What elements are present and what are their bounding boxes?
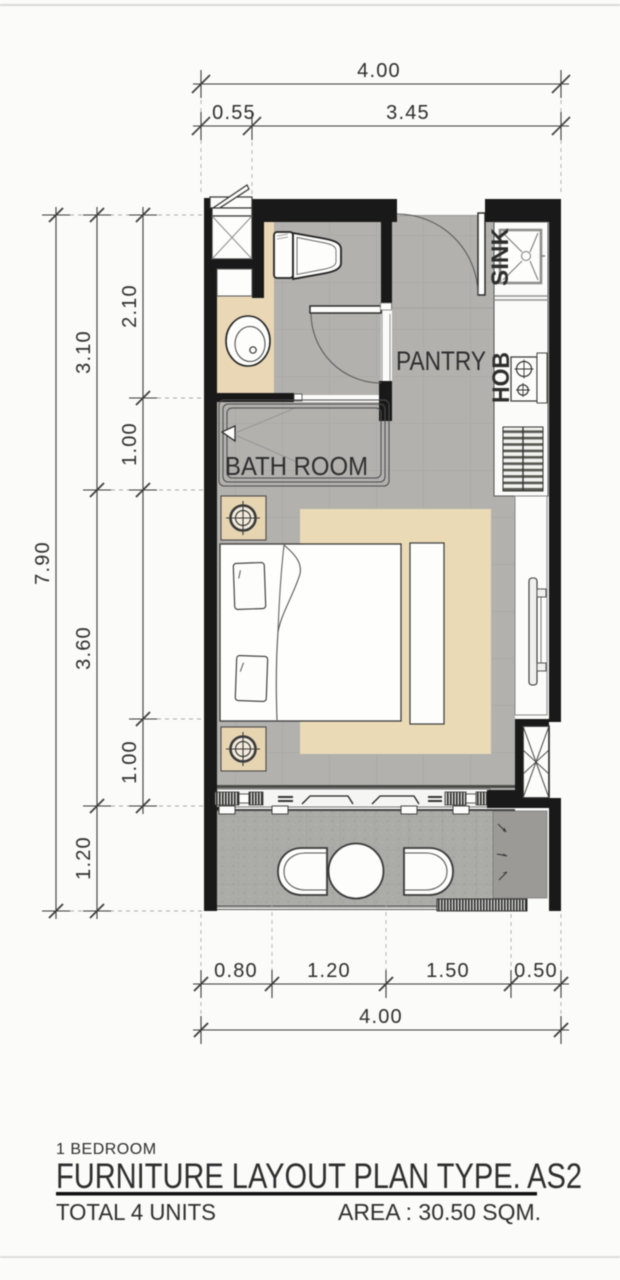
svg-text:PANTRY: PANTRY (396, 346, 486, 376)
svg-text:4.00: 4.00 (357, 60, 401, 82)
svg-text:7.90: 7.90 (32, 541, 54, 585)
svg-text:TOTAL 4 UNITS: TOTAL 4 UNITS (56, 1199, 216, 1225)
svg-text:1.50: 1.50 (426, 960, 470, 982)
svg-text:0.55: 0.55 (212, 102, 256, 124)
svg-text:BATH ROOM: BATH ROOM (225, 451, 368, 481)
svg-text:2.10: 2.10 (119, 284, 141, 328)
svg-text:HOB: HOB (488, 352, 515, 403)
svg-text:1.00: 1.00 (119, 422, 141, 466)
svg-text:1.00: 1.00 (119, 740, 141, 784)
svg-text:4.00: 4.00 (359, 1006, 403, 1028)
svg-text:1.20: 1.20 (73, 836, 95, 880)
svg-text:0.80: 0.80 (214, 960, 258, 982)
svg-text:FURNITURE LAYOUT PLAN TYPE. AS: FURNITURE LAYOUT PLAN TYPE. AS2 (56, 1157, 582, 1196)
svg-text:3.45: 3.45 (386, 102, 430, 124)
svg-text:AREA : 30.50 SQM.: AREA : 30.50 SQM. (338, 1199, 541, 1225)
svg-text:3.10: 3.10 (73, 330, 95, 374)
svg-text:1.20: 1.20 (307, 960, 351, 982)
svg-text:SINK: SINK (487, 227, 514, 286)
svg-text:1 BEDROOM: 1 BEDROOM (56, 1141, 157, 1158)
svg-text:3.60: 3.60 (73, 626, 95, 670)
svg-text:0.50: 0.50 (514, 960, 558, 982)
